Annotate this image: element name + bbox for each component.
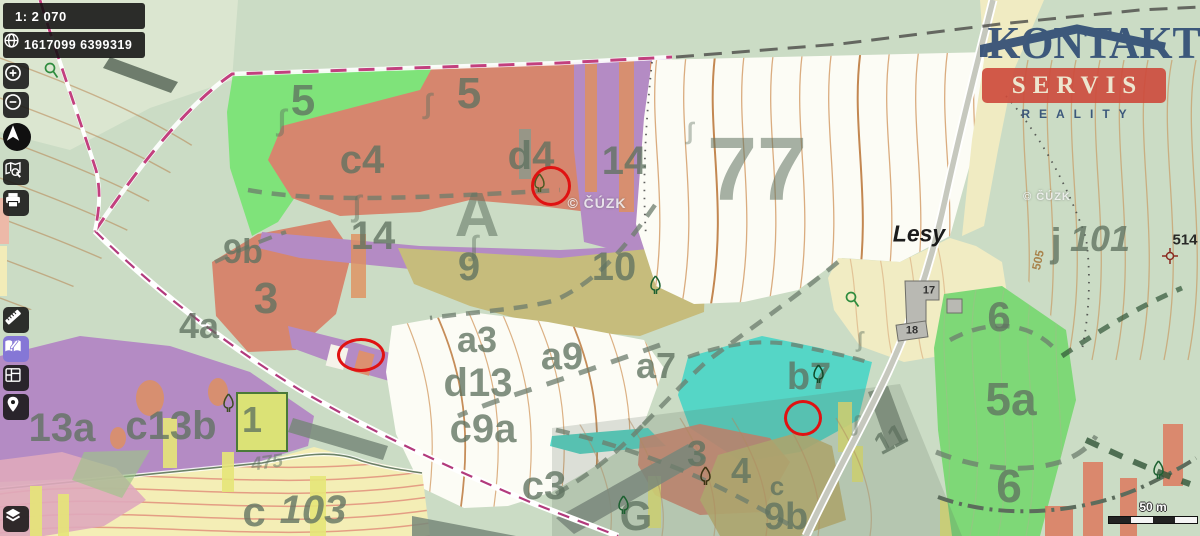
copyright-watermark: © ČÚZK xyxy=(1023,191,1071,203)
measure-button[interactable] xyxy=(3,307,29,333)
logo-line3: REALITY xyxy=(980,107,1168,121)
coordinates-display[interactable]: 1617099 6399319 xyxy=(3,32,145,58)
logo-line2-band: SERVIS xyxy=(982,68,1166,103)
copyright-watermark: © ČÚZK xyxy=(567,195,626,211)
map-search-button[interactable] xyxy=(3,159,29,185)
scalebar-label: 50 m xyxy=(1108,500,1198,514)
draw-notes-button[interactable] xyxy=(3,336,29,362)
compass-north-button[interactable] xyxy=(3,123,31,151)
print-button[interactable] xyxy=(3,190,29,216)
map-scale-display[interactable]: 1: 2 070 xyxy=(3,3,145,29)
layout-panels-button[interactable] xyxy=(3,365,29,391)
map-scale-value: 1: 2 070 xyxy=(15,9,67,24)
logo-line2: SERVIS xyxy=(1012,72,1143,99)
scalebar: 50 m xyxy=(1108,500,1198,524)
location-pin-button[interactable] xyxy=(3,394,29,420)
highlight-circle-marker xyxy=(337,338,385,372)
scalebar-bar xyxy=(1108,516,1198,524)
zoom-out-button[interactable] xyxy=(3,92,29,118)
coordinates-value: 1617099 6399319 xyxy=(24,38,132,52)
highlight-circle-marker xyxy=(784,400,822,436)
logo-line1: KONTAKT xyxy=(988,20,1161,66)
zoom-in-button[interactable] xyxy=(3,63,29,89)
layers-button[interactable] xyxy=(3,506,29,532)
kontakt-servis-logo: KONTAKT SERVIS REALITY xyxy=(980,24,1168,121)
highlight-circle-marker xyxy=(531,166,571,206)
map-app-window: 55c4d414A14910779b34aa3a9d13c9ac3a7b734c… xyxy=(0,0,1200,536)
